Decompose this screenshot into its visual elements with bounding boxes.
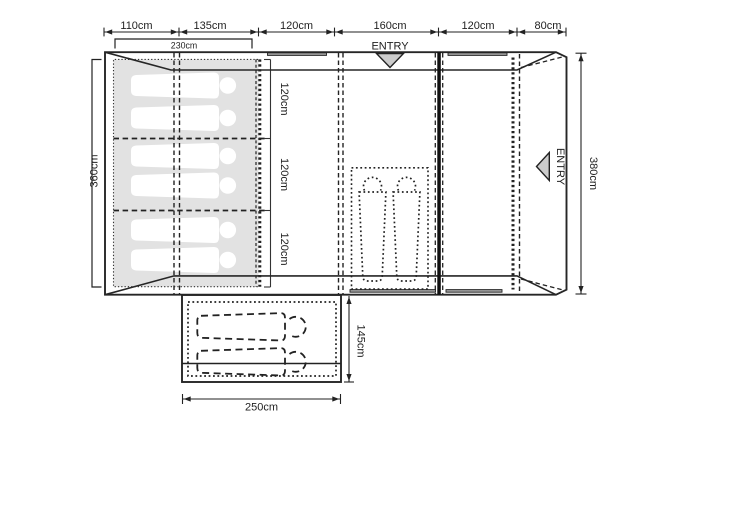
svg-text:145cm: 145cm	[355, 324, 367, 357]
svg-text:135cm: 135cm	[193, 20, 226, 32]
svg-text:380cm: 380cm	[587, 157, 599, 190]
svg-text:230cm: 230cm	[171, 41, 197, 51]
svg-text:110cm: 110cm	[120, 20, 152, 32]
svg-text:120cm: 120cm	[278, 82, 290, 115]
svg-text:250cm: 250cm	[245, 402, 278, 414]
svg-text:80cm: 80cm	[535, 20, 562, 32]
svg-text:ENTRY: ENTRY	[371, 41, 409, 53]
svg-text:120cm: 120cm	[280, 20, 313, 32]
svg-text:160cm: 160cm	[373, 20, 406, 32]
svg-text:ENTRY: ENTRY	[554, 148, 566, 186]
svg-text:120cm: 120cm	[461, 20, 494, 32]
svg-text:120cm: 120cm	[278, 232, 290, 265]
svg-text:120cm: 120cm	[278, 158, 290, 191]
svg-text:360cm: 360cm	[89, 154, 101, 187]
